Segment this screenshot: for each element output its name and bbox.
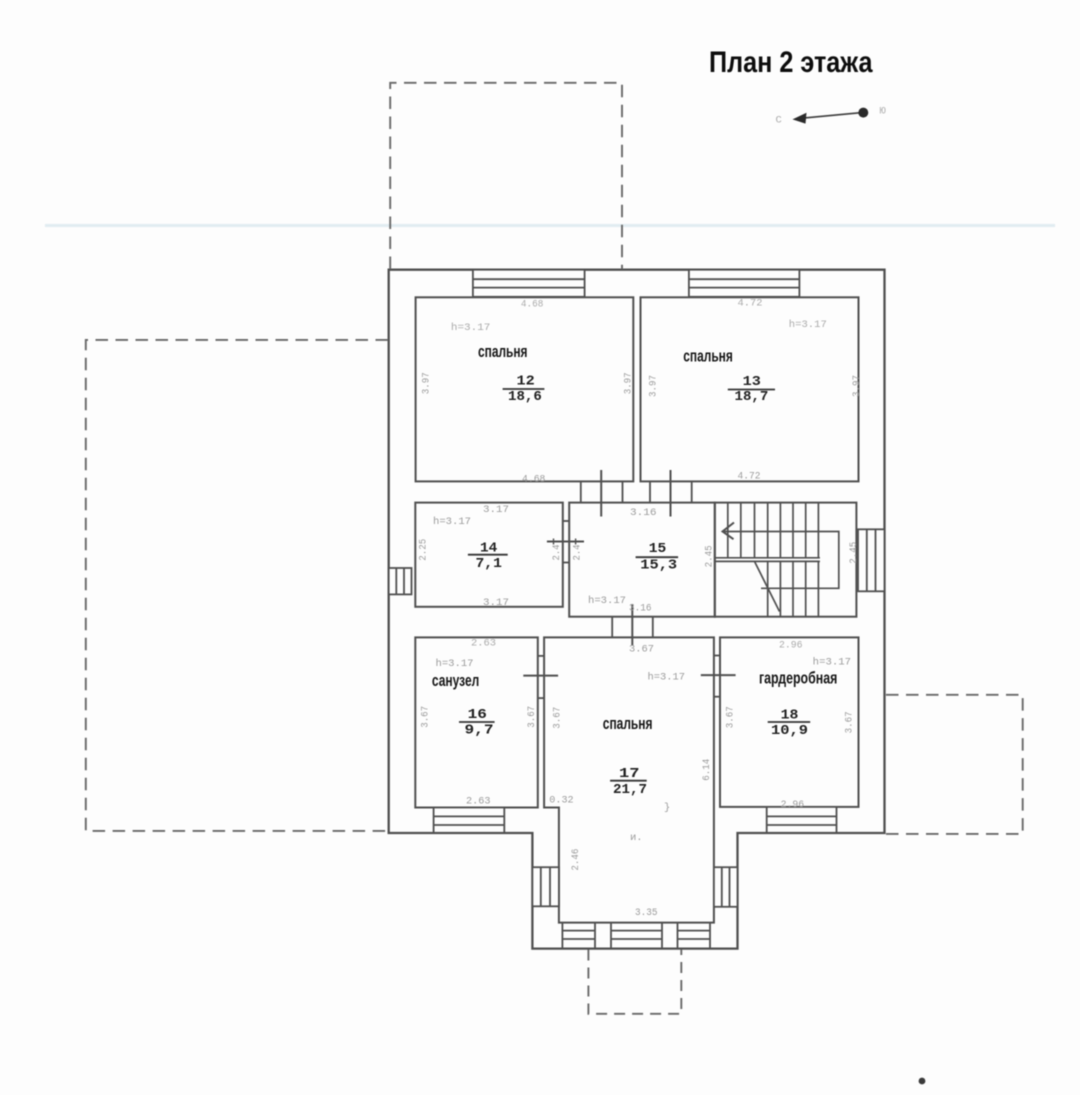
svg-text:3.97: 3.97 [622, 372, 634, 394]
svg-text:h=3.17: h=3.17 [648, 672, 686, 684]
svg-text:0.32: 0.32 [549, 794, 573, 806]
svg-text:3.17: 3.17 [483, 504, 509, 516]
svg-text:С: С [776, 115, 782, 127]
svg-text:2.45: 2.45 [848, 542, 860, 564]
svg-text:21,7: 21,7 [613, 782, 647, 798]
svg-text:10,9: 10,9 [771, 723, 808, 739]
svg-text:4.68: 4.68 [522, 474, 545, 486]
svg-text:3.67: 3.67 [629, 644, 654, 656]
svg-text:h=3.17: h=3.17 [451, 322, 491, 334]
svg-text:18,6: 18,6 [508, 389, 542, 405]
svg-text:3.17: 3.17 [483, 597, 509, 609]
svg-text:3.97: 3.97 [420, 372, 432, 394]
svg-text:2.25: 2.25 [418, 539, 430, 561]
svg-text:4.68: 4.68 [521, 299, 544, 311]
svg-text:спальня: спальня [478, 343, 528, 361]
svg-text:2.4: 2.4 [571, 545, 583, 561]
svg-text:3.67: 3.67 [419, 706, 431, 728]
svg-text:18: 18 [781, 707, 799, 723]
svg-text:Ю: Ю [880, 106, 887, 118]
svg-text:3.16: 3.16 [629, 603, 652, 615]
svg-text:3.67: 3.67 [551, 707, 563, 729]
svg-text:2.96: 2.96 [781, 799, 805, 811]
svg-text:2.4: 2.4 [551, 545, 563, 561]
svg-text:6.14: 6.14 [701, 759, 713, 781]
svg-text:13: 13 [743, 374, 761, 390]
svg-text:h=3.17: h=3.17 [588, 595, 626, 607]
svg-text:спальня: спальня [683, 348, 733, 366]
svg-text:h=3.17: h=3.17 [813, 657, 851, 669]
svg-text:h=3.17: h=3.17 [789, 319, 827, 331]
svg-text:3.97: 3.97 [647, 375, 659, 397]
svg-text:h=3.17: h=3.17 [433, 516, 471, 528]
svg-text:2.63: 2.63 [471, 637, 496, 649]
svg-text:3.67: 3.67 [526, 706, 538, 728]
svg-text:18,7: 18,7 [735, 389, 769, 405]
svg-text:3.67: 3.67 [725, 706, 737, 728]
svg-text:h=3.17: h=3.17 [436, 658, 474, 670]
svg-text:2.96: 2.96 [779, 639, 803, 651]
svg-text:4.72: 4.72 [738, 471, 761, 483]
svg-text:спальня: спальня [603, 715, 653, 733]
svg-text:7,1: 7,1 [476, 556, 502, 572]
svg-text:3.16: 3.16 [630, 507, 657, 519]
svg-text:17: 17 [619, 766, 640, 782]
svg-text:2.63: 2.63 [466, 796, 491, 808]
svg-text:3.35: 3.35 [635, 907, 658, 919]
svg-text:2.45: 2.45 [704, 545, 716, 567]
svg-text:}: } [664, 802, 670, 814]
svg-text:2.46: 2.46 [570, 849, 582, 871]
svg-text:3.97: 3.97 [851, 375, 863, 397]
svg-text:15: 15 [649, 541, 667, 557]
svg-text:4.72: 4.72 [738, 298, 763, 310]
svg-text:и.: и. [630, 832, 643, 844]
svg-text:гардеробная: гардеробная [759, 669, 837, 687]
svg-text:15,3: 15,3 [640, 557, 677, 573]
svg-text:санузел: санузел [432, 672, 479, 690]
svg-text:3.67: 3.67 [844, 711, 856, 733]
svg-text:16: 16 [468, 707, 487, 723]
svg-text:9,7: 9,7 [465, 723, 494, 739]
svg-text:План 2 этажа: План 2 этажа [709, 46, 873, 79]
svg-text:12: 12 [517, 374, 535, 390]
